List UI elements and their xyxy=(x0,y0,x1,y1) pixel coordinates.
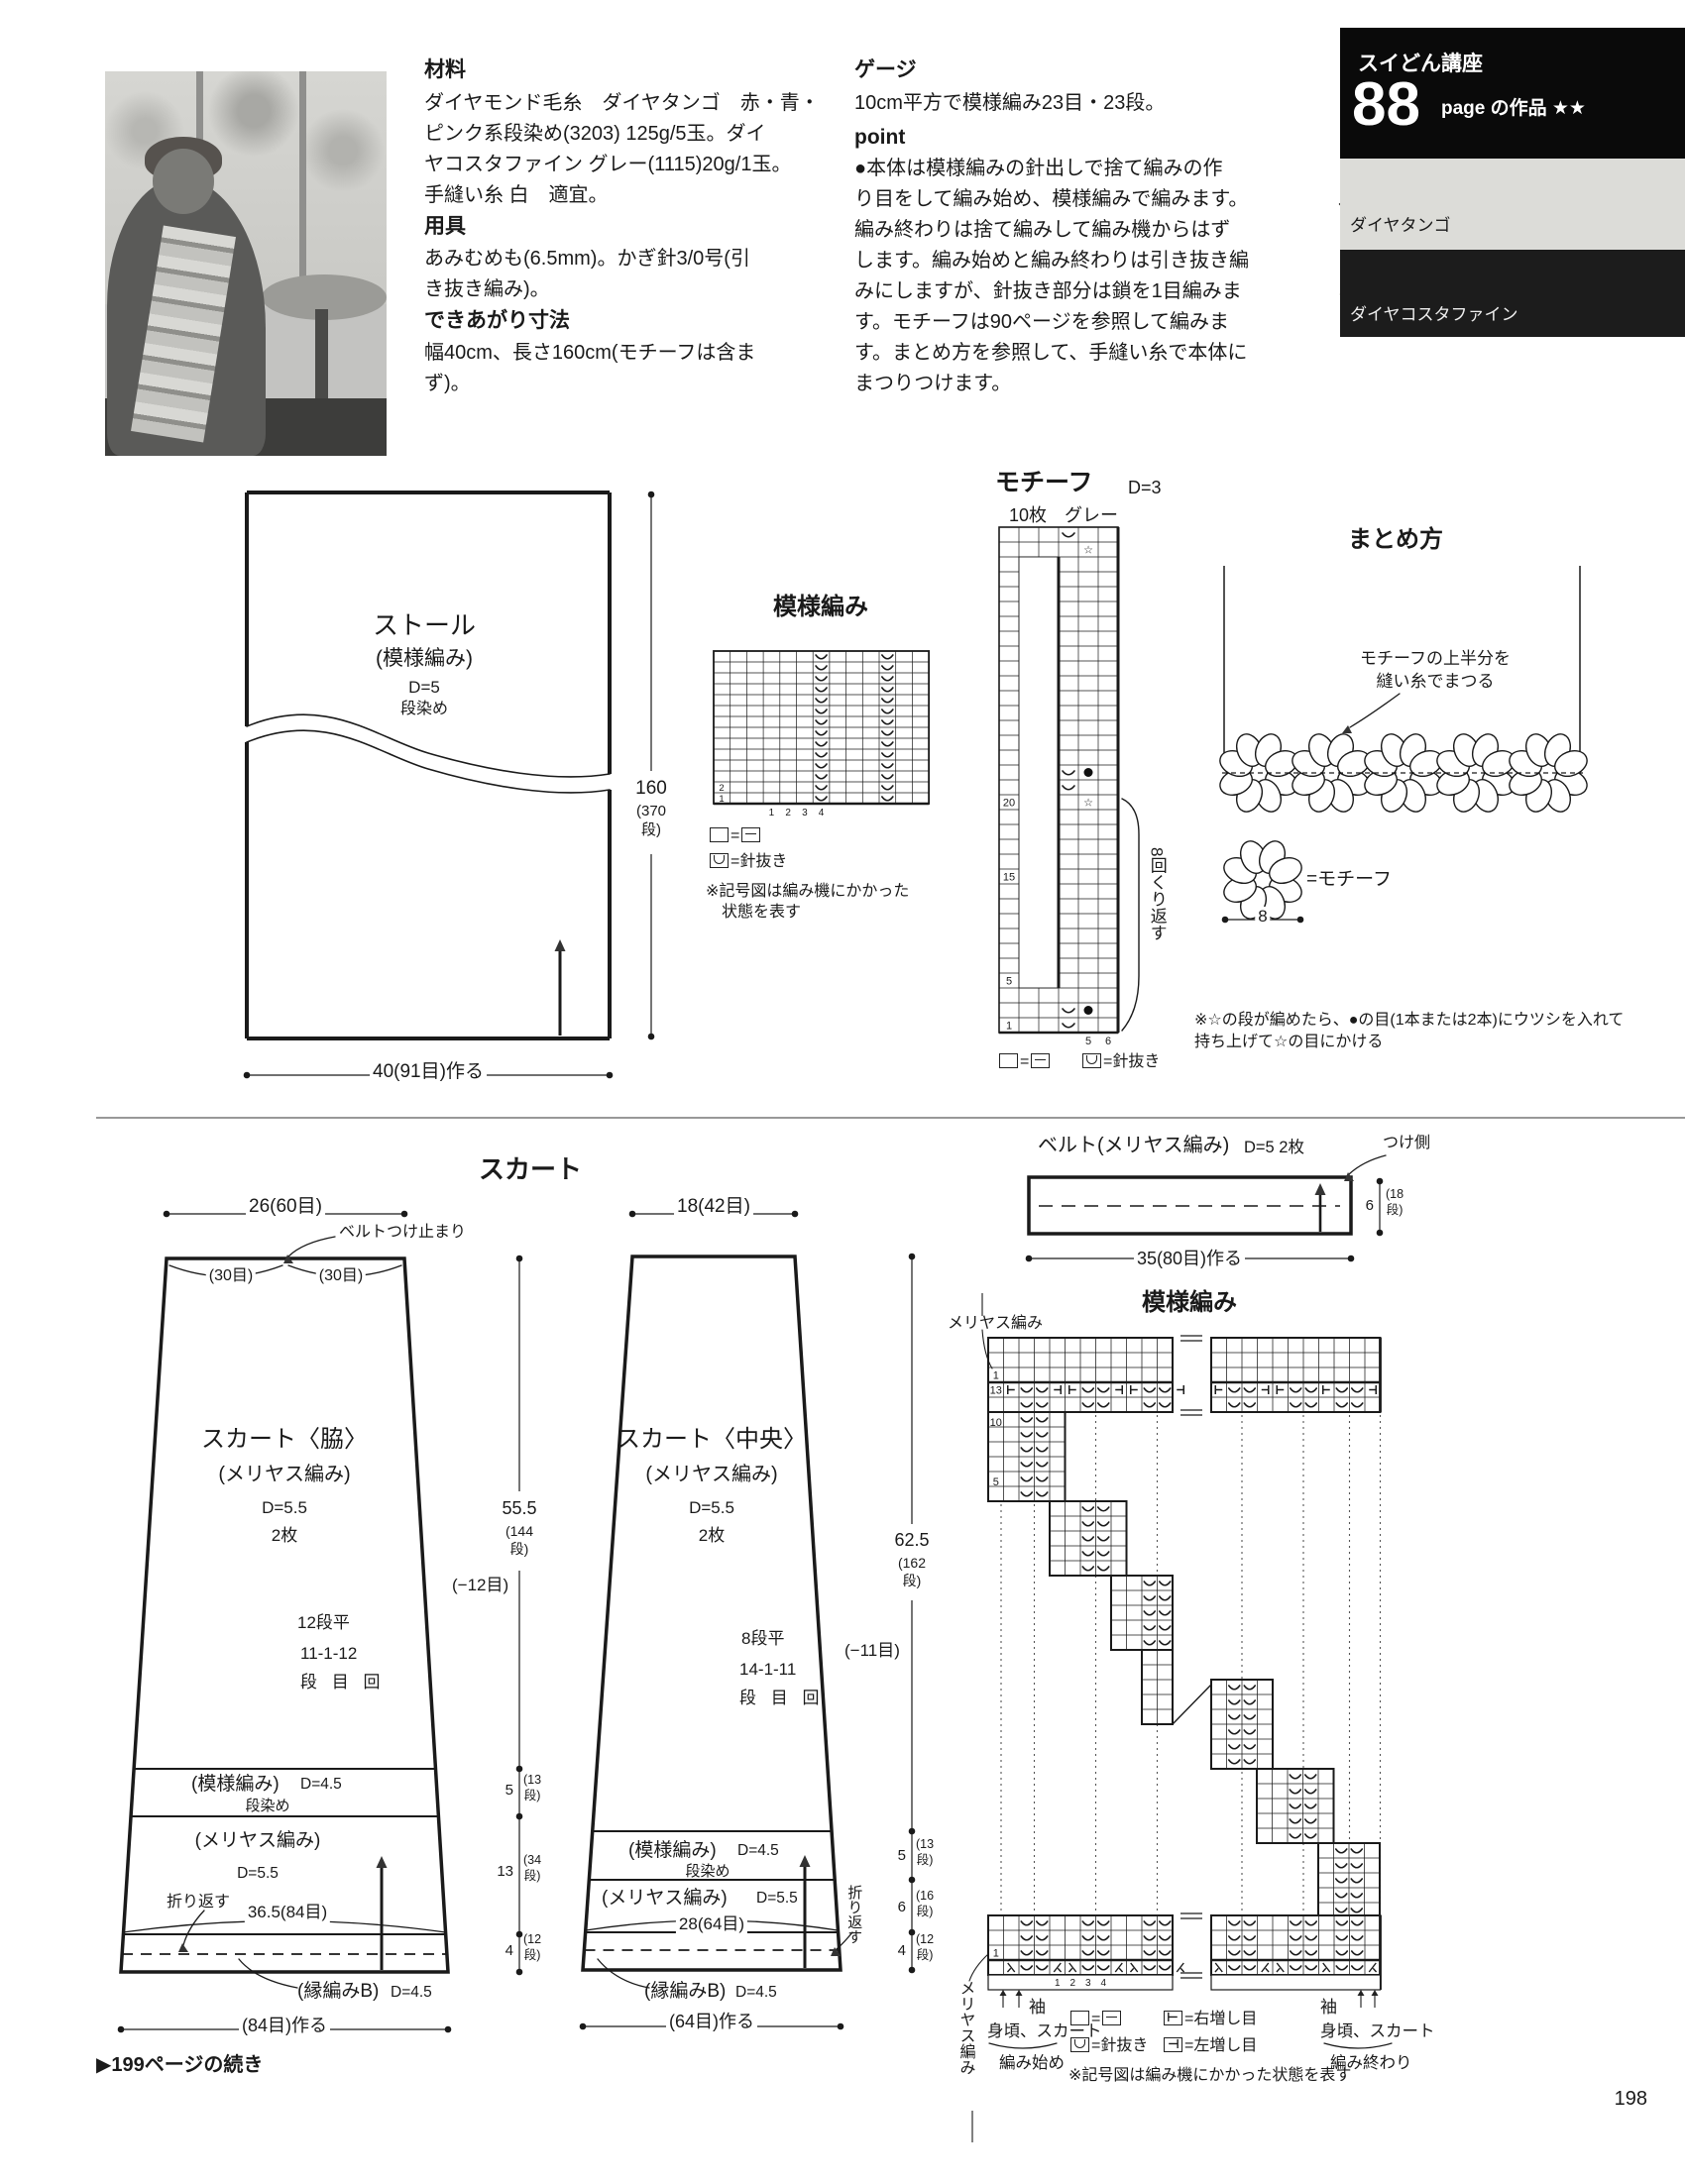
needle-out-icon xyxy=(1082,1053,1101,1068)
skirt-side-name: スカート〈脇〉 xyxy=(201,1425,368,1454)
skirt-center-edge: (縁編みB) xyxy=(644,1980,726,2003)
yarn1-label: ダイヤタンゴ xyxy=(1350,216,1451,237)
skirt-center-fold: 折り返す xyxy=(844,1885,862,1964)
belt-height-rows: (18 段) xyxy=(1386,1187,1404,1218)
svg-text:☆: ☆ xyxy=(1083,545,1093,557)
yarn2-label: ダイヤコスタファイン xyxy=(1350,305,1518,326)
big-chart-title: 模様編み xyxy=(1142,1288,1237,1317)
model-photo xyxy=(105,71,387,456)
skirt-side-decrease: (−12目) xyxy=(452,1576,508,1596)
motif-count: 10枚 グレー xyxy=(1009,505,1118,527)
belt-cast-on: 35(80目)作る xyxy=(1134,1249,1245,1270)
motif-title: モチーフ xyxy=(995,468,1093,498)
course-box: スイどん講座 88 page の作品 ★★ xyxy=(1340,28,1685,159)
skirt-side-shaping: 段 目 回 xyxy=(300,1673,385,1693)
magazine-page: 211234☆☆2015515611310511234 材料 ダイヤモンド毛糸 … xyxy=(0,0,1685,2184)
stitch-chart-legend-plain: = xyxy=(708,826,762,846)
svg-text:1: 1 xyxy=(1055,1978,1061,1989)
skirt-center-edge-density: D=4.5 xyxy=(735,1984,777,2003)
skirt-side-shaping: 12段平 xyxy=(297,1613,350,1634)
course-page-number: 88 xyxy=(1352,67,1420,143)
stole-height: 160 xyxy=(632,777,670,800)
skirt-side-left-sts: (30目) xyxy=(206,1266,256,1286)
skirt-side-belt-stop: ベルトつけ止まり xyxy=(339,1223,466,1243)
skirt-center-top-width: 18(42目) xyxy=(674,1195,753,1218)
knit-cell-icon xyxy=(1031,1053,1050,1068)
assembly-title: まとめ方 xyxy=(1348,525,1443,554)
assembly-note: 縫い糸でまつる xyxy=(1377,672,1495,693)
skirt-side-cast-on: (84目)作る xyxy=(239,2016,330,2037)
skirt-center-name: スカート〈中央〉 xyxy=(617,1425,807,1454)
skirt-side-band2-density: D=5.5 xyxy=(237,1865,279,1884)
skirt-side-seg1: 5 xyxy=(505,1782,513,1800)
svg-text:1: 1 xyxy=(993,1370,999,1382)
belt-attach-side: つけ側 xyxy=(1383,1134,1430,1153)
big-chart-stockinette-left: メリヤス編み xyxy=(955,1980,975,2119)
knit-cell-icon xyxy=(741,827,760,842)
skirt-side-height-rows: (144 段) xyxy=(503,1523,536,1558)
skirt-side-hem-width: 36.5(84目) xyxy=(245,1903,330,1923)
size-line: 幅40cm、長さ160cm(モチーフは含ま xyxy=(424,341,755,365)
tools-line: あみむめも(6.5mm)。かぎ針3/0号(引 xyxy=(424,247,750,271)
belt-density: D=5 2枚 xyxy=(1244,1138,1304,1157)
svg-text:10: 10 xyxy=(990,1417,1002,1429)
skirt-side-band1: (模様編み) xyxy=(191,1773,280,1796)
skirt-center-seg3-rows: (12 段) xyxy=(916,1932,934,1963)
point-line: す。まとめ方を参照して、手縫い糸で本体に xyxy=(854,341,1247,365)
gauge-heading: ゲージ xyxy=(854,57,917,83)
materials-heading: 材料 xyxy=(424,57,466,83)
point-line: 編み終わりは捨て編みして編み機からはず xyxy=(854,218,1230,242)
legend-equals: = xyxy=(1091,2011,1100,2027)
skirt-side-right-sts: (30目) xyxy=(316,1266,366,1286)
course-suffix: page の作品 ★★ xyxy=(1441,97,1586,120)
svg-text:2: 2 xyxy=(719,783,724,794)
skirt-center-band2-density: D=5.5 xyxy=(756,1890,798,1909)
skirt-side-band1-density: D=4.5 xyxy=(300,1776,342,1795)
point-line: みにしますが、針抜き部分は鎖を1目編みま xyxy=(854,279,1242,303)
stole-density: D=5 xyxy=(408,678,440,699)
left-increase-icon xyxy=(1164,2037,1182,2052)
knit-cell-icon xyxy=(1102,2011,1121,2025)
stitch-chart-note: ※記号図は編み機にかかった xyxy=(706,882,909,902)
yarn-sample-2: ダイヤコスタファイン xyxy=(1340,250,1685,337)
point-line: ●本体は模様編みの針出しで捨て編みの作 xyxy=(854,157,1222,180)
motif-density: D=3 xyxy=(1128,478,1162,499)
stitch-chart-legend-smile: =針抜き xyxy=(708,852,787,872)
skirt-side-seg2: 13 xyxy=(497,1863,513,1881)
stole-technique: (模様編み) xyxy=(376,646,473,672)
motif-repeat: 8回くり返す xyxy=(1146,847,1167,996)
gauge-line: 10cm平方で模様編み23目・23段。 xyxy=(854,91,1165,115)
skirt-side-fold: 折り返す xyxy=(167,1893,230,1912)
skirt-side-top-width: 26(60目) xyxy=(246,1195,325,1218)
point-line: す。モチーフは90ページを参照して編みま xyxy=(854,310,1229,334)
motif-legend-plain: = xyxy=(997,1052,1052,1072)
skirt-side-technique: (メリヤス編み) xyxy=(218,1463,350,1486)
big-chart-legend-linc: =左増し目 xyxy=(1162,2036,1257,2056)
legend-equals: = xyxy=(1020,1053,1029,1070)
skirt-side-density: D=5.5 xyxy=(262,1498,307,1519)
skirt-side-seg3-rows: (12 段) xyxy=(523,1932,541,1963)
svg-text:1: 1 xyxy=(719,794,724,805)
assembly-motif-width: 8 xyxy=(1255,907,1270,928)
big-chart-legend-rinc: =右増し目 xyxy=(1162,2010,1257,2029)
right-increase-icon xyxy=(1164,2011,1182,2025)
size-line: ず)。 xyxy=(424,372,471,395)
svg-text:4: 4 xyxy=(1100,1978,1106,1989)
yarn-sample-1: ダイヤタンゴ xyxy=(1340,159,1685,250)
big-chart-note: ※記号図は編み機にかかった状態を表す xyxy=(1068,2066,1351,2086)
skirt-center-seg1-rows: (13 段) xyxy=(916,1837,934,1868)
motif-note: 持ち上げて☆の目にかける xyxy=(1194,1033,1383,1052)
svg-text:1: 1 xyxy=(1006,1021,1012,1033)
belt-name: ベルト(メリヤス編み) xyxy=(1038,1134,1229,1157)
skirt-center-density: D=5.5 xyxy=(689,1498,734,1519)
skirt-center-pieces: 2枚 xyxy=(699,1526,725,1547)
svg-text:6: 6 xyxy=(1105,1036,1111,1047)
skirt-center-seg2-rows: (16 段) xyxy=(916,1889,934,1919)
skirt-side-pieces: 2枚 xyxy=(272,1526,297,1547)
skirt-side-seg1-rows: (13 段) xyxy=(523,1773,541,1803)
motif-legend-smile: =針抜き xyxy=(1080,1052,1160,1072)
stole-yarn: 段染め xyxy=(400,700,448,719)
skirt-side-edge: (縁編みB) xyxy=(297,1980,379,2003)
svg-text:3: 3 xyxy=(802,808,808,819)
stole-height-rows: (370 段) xyxy=(633,803,669,840)
skirt-center-technique: (メリヤス編み) xyxy=(645,1463,777,1486)
svg-text:1: 1 xyxy=(769,808,775,819)
legend-equals: = xyxy=(730,827,739,844)
skirt-side-height: 55.5 xyxy=(499,1498,539,1520)
stole-cast-on: 40(91目)作る xyxy=(370,1060,487,1083)
svg-text:13: 13 xyxy=(990,1385,1002,1397)
big-chart-legend-plain: = xyxy=(1068,2010,1123,2029)
needle-out-icon xyxy=(1070,2037,1089,2052)
skirt-center-shaping: 段 目 回 xyxy=(739,1689,824,1709)
legend-right-increase-label: =右増し目 xyxy=(1184,2011,1257,2027)
skirt-center-band1: (模様編み) xyxy=(628,1839,717,1862)
skirt-side-band1-yarn: 段染め xyxy=(245,1798,289,1815)
skirt-center-height: 62.5 xyxy=(891,1530,932,1552)
materials-line: ダイヤモンド毛糸 ダイヤタンゴ 赤・青・ xyxy=(424,91,820,115)
skirt-side-seg2-rows: (34 段) xyxy=(523,1853,541,1884)
svg-text:2: 2 xyxy=(785,808,791,819)
plain-cell-icon xyxy=(710,827,729,842)
model-head xyxy=(153,149,214,214)
materials-line: ピンク系段染め(3203) 125g/5玉。ダイ xyxy=(424,122,766,146)
skirt-center-band1-yarn: 段染め xyxy=(685,1863,730,1881)
svg-text:5: 5 xyxy=(1006,976,1012,988)
needle-out-icon xyxy=(710,853,729,868)
svg-text:5: 5 xyxy=(993,1476,999,1488)
legend-left-increase-label: =左増し目 xyxy=(1184,2037,1257,2054)
tools-heading: 用具 xyxy=(424,214,466,240)
stitch-chart-note: 状態を表す xyxy=(722,903,801,923)
plain-cell-icon xyxy=(1070,2011,1089,2025)
stole-name: ストール xyxy=(373,610,476,642)
big-chart-legend-smile: =針抜き xyxy=(1068,2036,1148,2056)
size-heading: できあがり寸法 xyxy=(424,308,570,334)
materials-line: 手縫い糸 白 適宜。 xyxy=(424,183,609,207)
plain-cell-icon xyxy=(999,1053,1018,1068)
point-line: り目をして編み始め、模様編みで編みます。 xyxy=(854,187,1248,211)
motif-note: ※☆の段が編めたら、●の目(1本または2本)にウツシを入れて xyxy=(1194,1011,1624,1031)
svg-text:20: 20 xyxy=(1003,798,1015,810)
belt-height: 6 xyxy=(1366,1197,1374,1215)
svg-text:1: 1 xyxy=(993,1948,999,1960)
svg-text:3: 3 xyxy=(1085,1978,1091,1989)
svg-text:15: 15 xyxy=(1003,872,1015,884)
skirt-side-band2: (メリヤス編み) xyxy=(195,1829,321,1852)
big-chart-end-label: 身頃、スカート xyxy=(1320,2021,1435,2041)
skirt-center-height-rows: (162 段) xyxy=(895,1555,929,1589)
point-line: まつりつけます。 xyxy=(854,372,1011,395)
svg-text:☆: ☆ xyxy=(1083,798,1093,810)
skirt-center-hem-width: 28(64目) xyxy=(676,1914,747,1935)
skirt-center-seg3: 4 xyxy=(898,1942,906,1960)
skirt-center-shaping: 14-1-11 xyxy=(739,1660,796,1681)
skirt-center-band2: (メリヤス編み) xyxy=(602,1887,728,1910)
skirt-center-decrease: (−11目) xyxy=(844,1641,900,1662)
svg-text:5: 5 xyxy=(1085,1036,1091,1047)
page-number: 198 xyxy=(1615,2087,1647,2111)
big-chart-stockinette-top: メリヤス編み xyxy=(948,1314,1043,1334)
point-line: します。編み始めと編み終わりは引き抜き編 xyxy=(854,249,1249,273)
continuation-note: ▶199ページの続き xyxy=(96,2053,263,2077)
skirt-center-band1-density: D=4.5 xyxy=(737,1842,779,1861)
legend-needle-out-label: =針抜き xyxy=(1103,1053,1160,1070)
assembly-flower-label: =モチーフ xyxy=(1306,868,1392,891)
point-heading: point xyxy=(854,125,905,151)
assembly-note: モチーフの上半分を xyxy=(1360,649,1511,670)
skirt-side-seg3: 4 xyxy=(505,1942,513,1960)
stitch-chart-title: 模様編み xyxy=(773,593,868,621)
svg-text:4: 4 xyxy=(819,808,825,819)
legend-needle-out-label: =針抜き xyxy=(1091,2037,1148,2054)
tools-line: き抜き編み)。 xyxy=(424,277,550,301)
svg-text:2: 2 xyxy=(1069,1978,1075,1989)
big-chart-sleeve-left: 袖 xyxy=(1029,1998,1046,2019)
skirt-center-seg1: 5 xyxy=(898,1847,906,1865)
materials-line: ヤコスタファイン グレー(1115)20g/1玉。 xyxy=(424,153,791,176)
skirt-side-shaping: 11-1-12 xyxy=(300,1644,357,1665)
skirt-center-shaping: 8段平 xyxy=(741,1629,784,1650)
skirt-center-seg2: 6 xyxy=(898,1899,906,1916)
big-chart-sleeve-right: 袖 xyxy=(1320,1998,1337,2019)
skirt-side-edge-density: D=4.5 xyxy=(391,1984,432,2003)
skirt-title: スカート xyxy=(479,1154,582,1186)
skirt-center-cast-on: (64目)作る xyxy=(666,2012,757,2033)
legend-needle-out-label: =針抜き xyxy=(730,853,787,870)
big-chart-start-label2: 編み始め xyxy=(999,2053,1065,2073)
